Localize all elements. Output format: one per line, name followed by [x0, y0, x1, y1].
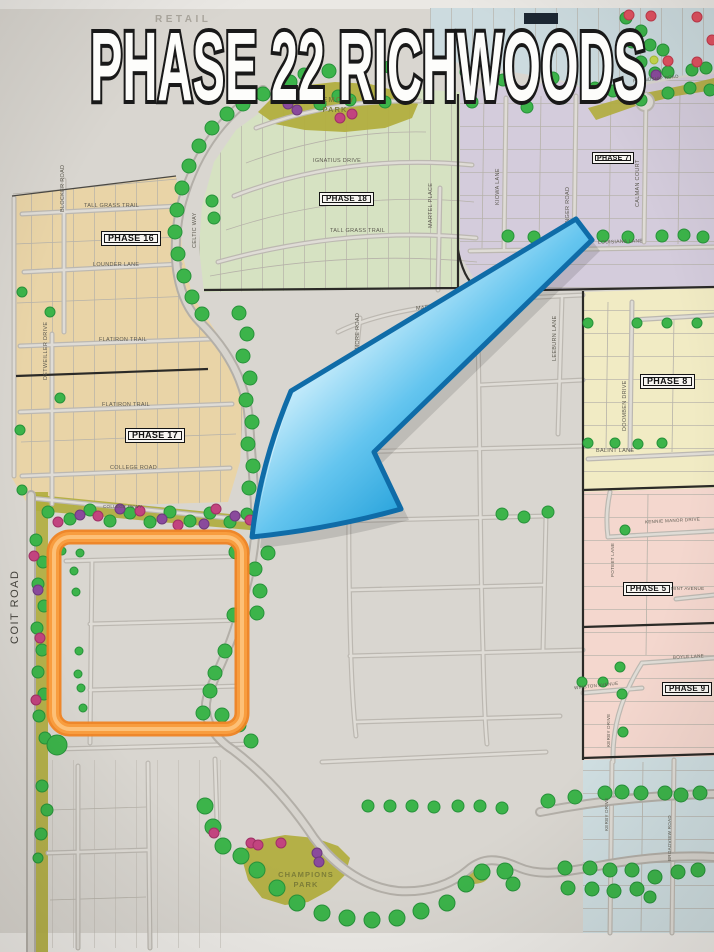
memory-park-label: MEMORY PARK: [303, 95, 367, 115]
photo-top-margin: [0, 0, 714, 9]
site-map-photo: RETAIL MEMORY PARK CHAMPIONS PARK PHASE …: [0, 0, 714, 952]
street-label-college-pkwy: COLLEGE PKWY: [103, 505, 142, 510]
street-label-balint-lane: BALINT LANE: [596, 449, 634, 455]
street-label-lounder-lane: LOUNDER LANE: [93, 263, 139, 269]
street-label-tall-grass-trail-18: TALL GRASS TRAIL: [330, 229, 385, 235]
phase-18-label: PHASE 18: [319, 192, 374, 206]
street-label-kiowa-lane: KIOWA LANE: [496, 168, 502, 205]
street-label-college-road: COLLEGE ROAD: [110, 466, 157, 472]
street-label-kerby-drive-upper: KERBY DRIVE: [607, 714, 612, 747]
street-label-kerby-drive-lower: KERBY DRIVE: [605, 798, 610, 831]
street-label-ranger-road: RANGER ROAD: [566, 187, 572, 231]
street-label-ardmore-road: ARDMORE ROAD: [356, 313, 362, 362]
street-label-doomben-drive: DOOMBEN DRIVE: [623, 380, 629, 431]
street-label-tall-grass-trail-16: TALL GRASS TRAIL: [84, 204, 139, 210]
street-label-leeburn-lane: LEEBURN LANE: [553, 316, 559, 361]
phase-9-label: PHASE 9: [662, 682, 712, 696]
phase-5-label: PHASE 5: [623, 582, 673, 596]
street-label-celtic-way: CELTIC WAY: [193, 212, 199, 248]
street-label-calman-court: CALMAN COURT: [636, 159, 642, 207]
street-label-martel-place: MARTEL PLACE: [429, 183, 435, 228]
street-label-mint-avenue: MINT AVENUE: [671, 587, 704, 592]
street-label-flatiron-trail-2: FLATIRON TRAIL: [102, 403, 150, 409]
phase-17-label: PHASE 17: [125, 428, 185, 443]
phase-16-label: PHASE 16: [101, 231, 161, 246]
street-label-broadview-road: BROADVIEW ROAD: [668, 815, 673, 861]
champions-park-label: CHAMPIONS PARK: [274, 870, 338, 890]
street-label-detweiller-drive: DETWEILLER DRIVE: [44, 322, 50, 380]
street-label-ignatius-drive: IGNATIUS DRIVE: [313, 159, 361, 165]
top-edge-label-box: [524, 13, 558, 24]
street-label-coit-road: COIT ROAD: [10, 570, 21, 644]
tree-dot-yellowgreen: [650, 56, 658, 64]
phase-8-label: PHASE 8: [640, 374, 695, 389]
phase-7-label: PHASE 7: [592, 152, 634, 164]
street-label-flatiron-trail-1: FLATIRON TRAIL: [99, 338, 147, 344]
street-label-poteet-lane: POTEET LANE: [611, 543, 616, 577]
retail-area-label: RETAIL: [155, 14, 211, 25]
street-label-blocker-road: BLOCKER ROAD: [61, 165, 67, 212]
